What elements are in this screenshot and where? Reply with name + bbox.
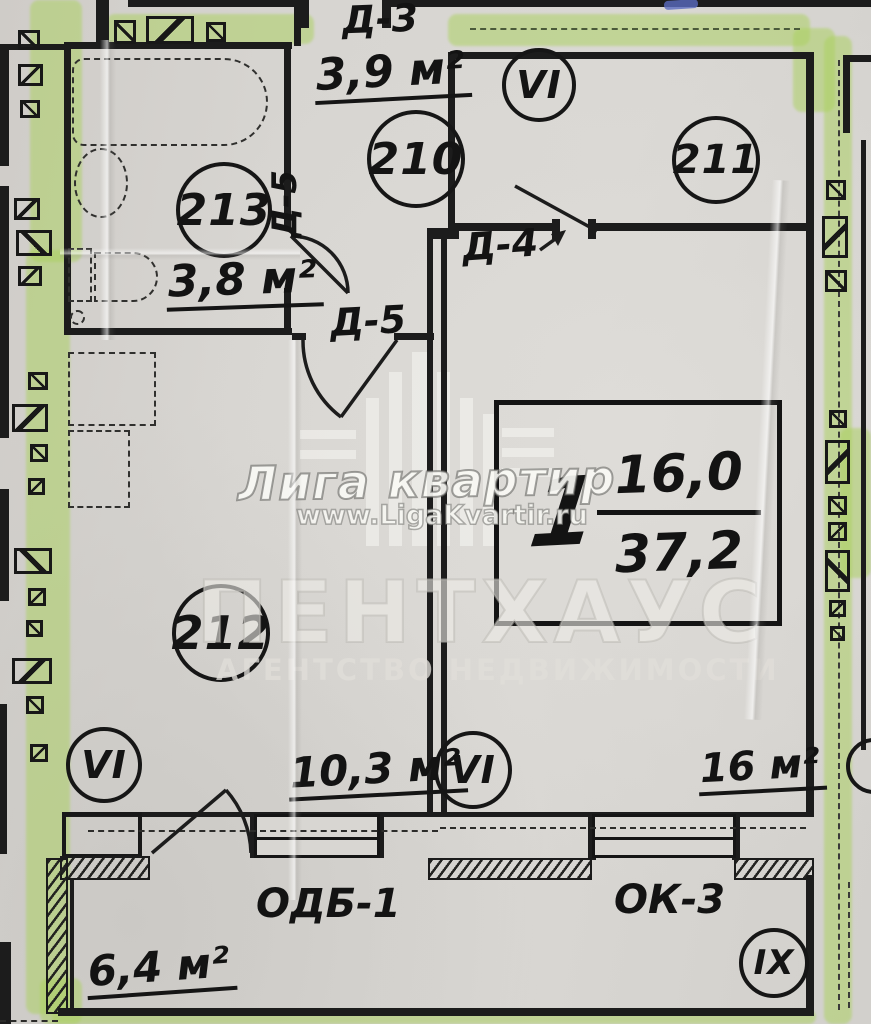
area-fraction: 16,0 37,2 <box>597 444 761 583</box>
room-stamp-213: 213 <box>176 162 272 258</box>
room-number-213: 213 <box>177 185 272 236</box>
living-area-value: 16,0 <box>596 441 762 513</box>
area-balcony: 6,4 м² <box>84 941 237 1000</box>
stamp-vi-label: VI <box>81 743 127 787</box>
room-stamp-210: 210 <box>367 110 465 208</box>
room-number-212: 212 <box>171 606 270 660</box>
balcony-door-leaf <box>152 790 226 853</box>
area-kitchen: 10,3 м² <box>287 743 468 801</box>
balcony-door-unit-label: ОДБ-1 <box>256 884 401 924</box>
stamp-vi-label: VI <box>516 63 562 107</box>
door-label-d5: Д-5 <box>329 300 407 342</box>
window-unit-label: ОК-3 <box>614 880 725 920</box>
room-number-210: 210 <box>369 134 464 185</box>
room-number-211: 211 <box>673 137 760 183</box>
door-label-d5-vertical: Д-5 <box>268 170 302 238</box>
area-bathroom: 3,8 м² <box>165 255 323 311</box>
room-stamp-212: 212 <box>172 584 270 682</box>
d4-pointer-arrowhead <box>551 230 566 246</box>
total-area-value: 37,2 <box>596 512 762 586</box>
stamp-vi-top: VI <box>502 48 576 122</box>
apartment-number: 1 <box>524 456 604 569</box>
area-living: 16 м² <box>697 743 827 797</box>
stamp-vi-left: VI <box>66 727 142 803</box>
room-door-leaf <box>341 340 397 417</box>
area-hall: 3,9 м² <box>313 46 472 105</box>
room-stamp-211: 211 <box>672 116 760 204</box>
floor-plan-scan: 213 210 211 212 VI VI VI IX Д-3 Д-5 Д-5 … <box>0 0 871 1024</box>
door-label-d3: Д-3 <box>341 0 418 39</box>
room-door-arc <box>303 340 341 417</box>
apartment-info-box: 1 16,0 37,2 <box>494 400 782 626</box>
door-label-d4: Д-4 <box>461 223 540 266</box>
stamp-ix: IX <box>739 928 809 998</box>
balcony-door-arc <box>226 790 251 853</box>
stamp-ix-label: IX <box>754 943 795 983</box>
